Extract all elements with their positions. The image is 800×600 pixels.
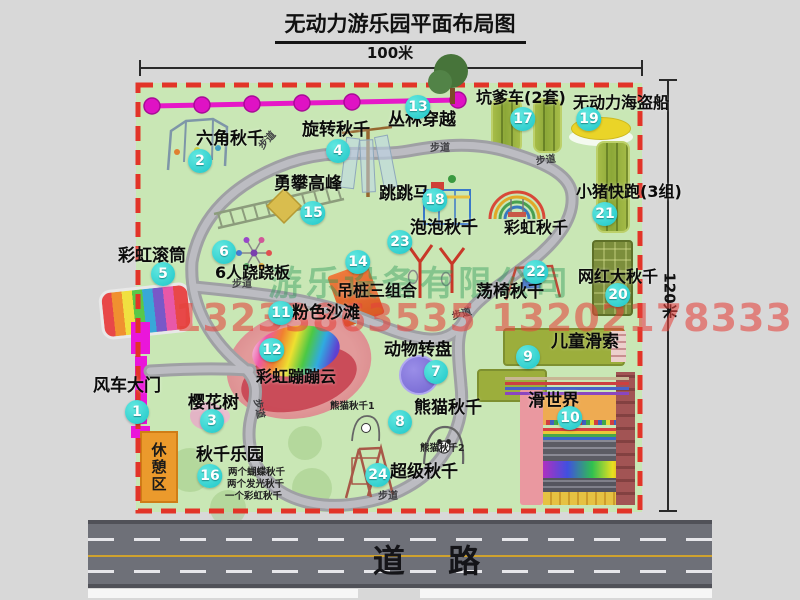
slide-world-rainbow-slide [543,461,625,478]
slide-world-band [543,440,625,461]
road-margin [420,589,712,598]
dimension-height-tick-bottom [659,510,677,512]
facility-badge-1: 1 [125,400,149,424]
dimension-width-label: 100米 [340,42,440,63]
tree-trunk [450,88,455,104]
walkway-label: 步道 [430,144,450,154]
dimension-width-line [140,67,642,69]
dimension-height-tick-top [659,79,677,81]
facility-badge-7: 7 [424,360,448,384]
facility-badge-4: 4 [326,139,350,163]
facility-label-14: 吊桩三组合 [337,283,417,299]
facility-label-15: 勇攀高峰 [274,176,342,193]
dimension-width-tick-left [139,60,141,76]
facility-badge-6: 6 [212,240,236,264]
facility-label-6: 6人跷跷板 [215,265,290,281]
facility-label-4: 旋转秋千 [302,122,370,139]
facility-label-11: 粉色沙滩 [292,305,360,322]
facility-label-16: 秋千乐园 [196,447,264,464]
walkway-label: 步道 [378,492,398,502]
rainbow-swing-label: 彩虹秋千 [504,220,568,236]
facility-label-17: 坑爹车(2套) [476,90,566,106]
facility-label-21: 小猪快跑(3组) [576,184,682,200]
facility-label-9: 儿童滑索 [551,334,619,351]
swing-park-note-1: 两个蝴蝶秋千 [228,468,285,478]
page-title-wrap: 无动力游乐园平面布局图 [0,8,800,44]
facility-label-1: 风车大门 [93,378,161,395]
facility-badge-9: 9 [516,345,540,369]
facility-label-22: 荡椅秋千 [476,284,544,301]
facility-label-5: 彩虹滚筒 [118,248,186,265]
facility-badge-2: 2 [188,149,212,173]
gate-bar [131,322,150,354]
panda-swing-1-label: 熊猫秋千1 [330,402,375,412]
swing-park-note-2: 两个发光秋千 [227,480,284,490]
zipline-cable [505,387,629,390]
road: 道 路 [88,520,712,588]
facility-label-7: 动物转盘 [384,342,452,359]
tree-icon [292,468,332,508]
facility-label-8: 熊猫秋千 [414,400,482,417]
road-margin [88,589,358,598]
facility-label-2: 六角秋千 [196,131,264,148]
facility-label-24: 超级秋千 [390,464,458,481]
dimension-width-tick-right [641,60,643,76]
facility-label-12: 彩虹蹦蹦云 [256,369,336,385]
slide-world-band [543,478,625,492]
slide-world-band [543,428,625,440]
facility-badge-3: 3 [200,409,224,433]
swing-park-note-3: 一个彩虹秋千 [225,492,282,502]
rest-area: 休憩区 [140,431,178,503]
facility-badge-5: 5 [151,262,175,286]
tree-icon [288,426,322,460]
facility-badge-8: 8 [388,410,412,434]
watermark-phone: 13233863535 13202178333 [175,296,793,340]
zipline-cable [505,377,629,380]
tree-icon [428,70,452,94]
rest-area-label: 休憩区 [149,442,170,493]
page-title: 无动力游乐园平面布局图 [275,8,526,44]
park-layout-map: 无动力游乐园平面布局图 100米 120米 [0,0,800,600]
panda-swing-2-label: 熊猫秋千2 [420,444,465,454]
road-label: 道 路 [308,536,548,582]
facility-label-23: 泡泡秋千 [410,220,478,237]
slide-world-band [543,492,625,505]
zipline-cable [505,382,629,385]
